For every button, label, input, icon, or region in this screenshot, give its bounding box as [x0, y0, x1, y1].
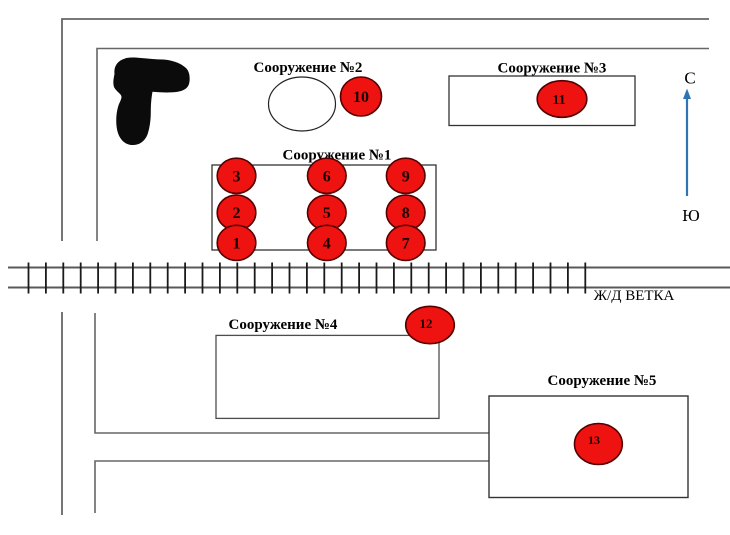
svg-text:Сооружение №5: Сооружение №5: [548, 373, 657, 389]
svg-text:8: 8: [402, 205, 410, 222]
svg-text:4: 4: [323, 235, 331, 252]
svg-text:9: 9: [402, 168, 410, 185]
svg-text:12: 12: [420, 316, 433, 331]
svg-text:6: 6: [323, 168, 331, 185]
svg-text:Ж/Д ВЕТКА: Ж/Д ВЕТКА: [594, 288, 675, 304]
svg-text:С: С: [684, 69, 695, 88]
svg-text:11: 11: [552, 93, 565, 108]
svg-text:3: 3: [233, 168, 241, 185]
svg-text:Сооружение №3: Сооружение №3: [498, 61, 607, 77]
svg-text:Ю: Ю: [682, 206, 699, 225]
svg-text:13: 13: [588, 433, 600, 447]
svg-text:Сооружение №4: Сооружение №4: [229, 317, 338, 333]
svg-text:7: 7: [402, 235, 410, 252]
svg-text:Сооружение №2: Сооружение №2: [254, 60, 363, 76]
svg-text:5: 5: [323, 205, 331, 222]
svg-text:2: 2: [233, 205, 241, 222]
svg-text:10: 10: [353, 89, 369, 106]
svg-text:1: 1: [233, 235, 241, 252]
